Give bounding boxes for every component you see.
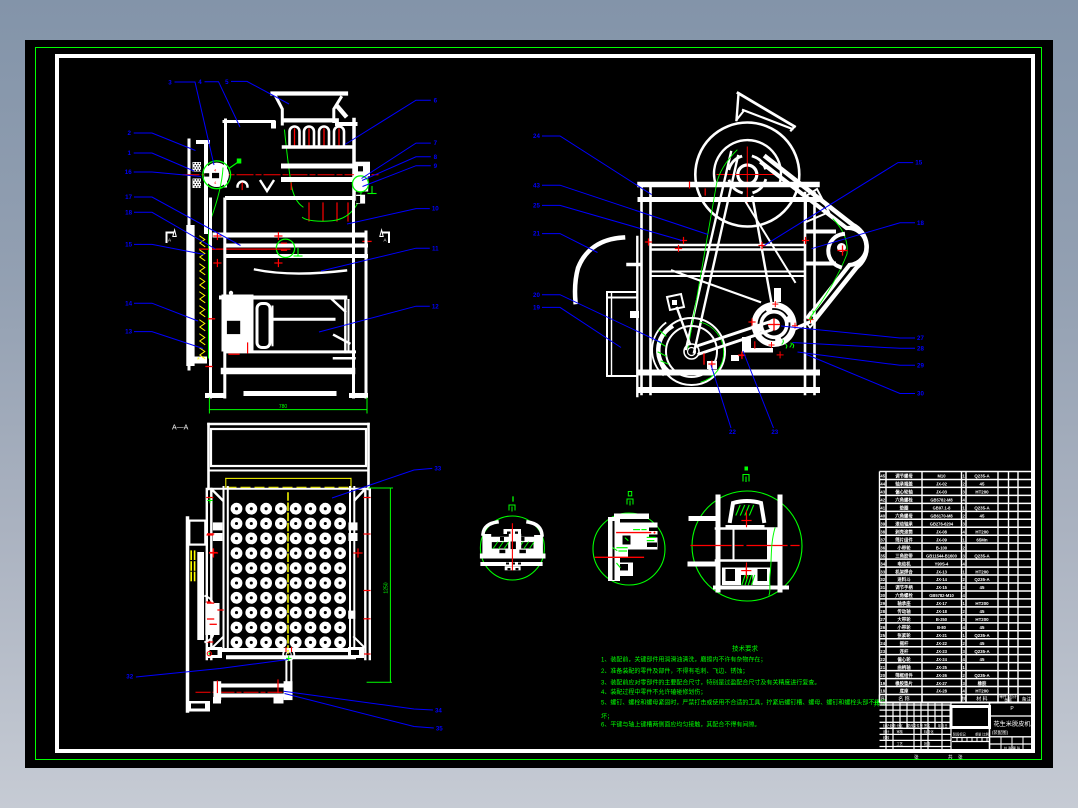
- svg-text:(装配图): (装配图): [992, 729, 1009, 736]
- svg-text:共 张 第 张: 共 张 第 张: [1004, 746, 1021, 751]
- svg-text:37: 37: [880, 537, 885, 542]
- svg-text:5: 5: [225, 79, 229, 86]
- svg-text:45: 45: [980, 641, 985, 646]
- svg-text:45: 45: [980, 585, 985, 590]
- svg-text:张: 张: [914, 754, 919, 761]
- svg-text:20: 20: [533, 292, 540, 299]
- svg-text:25: 25: [880, 633, 885, 638]
- svg-text:JX-28: JX-28: [936, 689, 948, 694]
- svg-text:18: 18: [917, 220, 924, 227]
- svg-text:33: 33: [880, 569, 885, 574]
- svg-text:HT200: HT200: [975, 601, 989, 606]
- svg-text:A—A: A—A: [172, 425, 189, 432]
- svg-text:滚动轴承: 滚动轴承: [895, 520, 913, 527]
- svg-text:A: A: [384, 238, 387, 243]
- svg-text:30: 30: [880, 593, 885, 598]
- svg-text:18: 18: [125, 209, 132, 216]
- svg-text:15: 15: [125, 242, 132, 249]
- svg-text:签名: 签名: [924, 723, 930, 728]
- svg-text:标准化: 标准化: [924, 729, 934, 734]
- svg-text:JX-17: JX-17: [936, 601, 948, 606]
- svg-text:JX-15: JX-15: [936, 585, 948, 590]
- svg-text:进料斗: 进料斗: [897, 576, 911, 583]
- svg-text:轴承端盖: 轴承端盖: [895, 481, 913, 488]
- svg-text:4: 4: [198, 79, 202, 86]
- svg-text:JX-18: JX-18: [936, 609, 948, 614]
- svg-text:HT200: HT200: [975, 689, 989, 694]
- svg-text:2: 2: [127, 130, 131, 137]
- svg-text:26: 26: [880, 625, 885, 630]
- svg-text:JX-27: JX-27: [936, 681, 948, 686]
- svg-text:8: 8: [434, 154, 438, 161]
- svg-text:HT200: HT200: [975, 617, 989, 622]
- svg-text:张: 张: [958, 754, 963, 761]
- svg-text:JX-08: JX-08: [936, 529, 948, 534]
- svg-text:小带轮: 小带轮: [897, 544, 911, 551]
- svg-text:14: 14: [125, 300, 132, 307]
- svg-text:GB5782-M8: GB5782-M8: [930, 498, 953, 503]
- svg-text:GB6170-M8: GB6170-M8: [930, 514, 953, 519]
- svg-text:44: 44: [880, 482, 885, 487]
- svg-text:坏；: 坏；: [601, 713, 613, 721]
- svg-text:45: 45: [980, 657, 985, 662]
- svg-text:重量 比例: 重量 比例: [975, 732, 989, 737]
- svg-text:35: 35: [880, 553, 885, 558]
- svg-text:9: 9: [434, 163, 438, 170]
- svg-text:JX-25: JX-25: [936, 665, 948, 670]
- svg-text:JX-14: JX-14: [936, 577, 948, 582]
- svg-text:23: 23: [880, 649, 885, 654]
- svg-text:17: 17: [125, 194, 132, 201]
- svg-text:三角胶带: 三角胶带: [895, 552, 913, 559]
- svg-text:28: 28: [880, 609, 885, 614]
- svg-text:1、装配前，关键部件用润滑油清洗，磨擦内不许有杂物存在；: 1、装配前，关键部件用润滑油清洗，磨擦内不许有杂物存在；: [601, 656, 766, 664]
- svg-text:曲柄轴: 曲柄轴: [897, 664, 911, 671]
- svg-text:21: 21: [880, 665, 885, 670]
- svg-text:JX-21: JX-21: [936, 633, 948, 638]
- svg-text:调节手柄: 调节手柄: [895, 584, 913, 591]
- svg-text:底座: 底座: [899, 688, 909, 695]
- svg-text:分区: 分区: [897, 723, 904, 728]
- svg-text:六角螺栓: 六角螺栓: [895, 497, 913, 504]
- svg-text:序: 序: [881, 695, 885, 702]
- svg-text:六角螺栓: 六角螺栓: [895, 592, 913, 599]
- svg-text:6: 6: [434, 97, 438, 104]
- svg-text:5、螺钉、螺栓和螺母紧固时，严禁打击或使用不合适的工具，拧紧: 5、螺钉、螺栓和螺母紧固时，严禁打击或使用不合适的工具，拧紧后螺钉槽、螺母、螺钉…: [601, 699, 886, 707]
- svg-text:校核: 校核: [883, 735, 890, 740]
- svg-text:Q235-A: Q235-A: [974, 673, 990, 678]
- svg-text:19: 19: [880, 681, 885, 686]
- svg-text:B-100: B-100: [936, 545, 948, 550]
- svg-text:JX-24: JX-24: [936, 657, 948, 662]
- svg-text:13: 13: [125, 329, 132, 336]
- svg-text:JX-22: JX-22: [936, 641, 948, 646]
- svg-text:Q235-A: Q235-A: [974, 649, 990, 654]
- svg-text:45: 45: [980, 482, 985, 487]
- svg-text:Y90S-4: Y90S-4: [935, 561, 949, 566]
- svg-text:16: 16: [125, 169, 132, 176]
- svg-text:橡胶: 橡胶: [978, 680, 987, 687]
- svg-text:45: 45: [980, 514, 985, 519]
- svg-text:六角螺母: 六角螺母: [895, 513, 913, 520]
- svg-text:45: 45: [980, 625, 985, 630]
- svg-text:3: 3: [168, 80, 172, 87]
- svg-text:28: 28: [917, 345, 924, 352]
- svg-text:36: 36: [880, 545, 885, 550]
- svg-text:垫圈: 垫圈: [900, 505, 909, 512]
- svg-text:审核: 审核: [897, 729, 904, 734]
- svg-text:JX-13: JX-13: [936, 569, 948, 574]
- svg-text:名 称: 名 称: [898, 695, 909, 702]
- svg-text:摇杆: 摇杆: [900, 640, 909, 647]
- svg-text:剥壳滚筒: 剥壳滚筒: [895, 528, 913, 535]
- svg-text:3、装配前应对零部件的主要配合尺寸，特别是过盈配合尺寸及有关: 3、装配前应对零部件的主要配合尺寸，特别是过盈配合尺寸及有关精度进行复查。: [601, 679, 820, 687]
- svg-text:橡胶垫片: 橡胶垫片: [895, 680, 913, 687]
- svg-text:技术要求: 技术要求: [732, 644, 759, 653]
- svg-text:重量: 重量: [1004, 698, 1012, 703]
- svg-text:调节螺母: 调节螺母: [895, 473, 913, 480]
- svg-text:41: 41: [880, 506, 885, 511]
- svg-text:工艺: 工艺: [897, 741, 903, 746]
- svg-text:780: 780: [279, 404, 288, 410]
- svg-text:阶段标记: 阶段标记: [953, 732, 967, 737]
- svg-text:筛框组件: 筛框组件: [895, 672, 913, 679]
- svg-text:GB97.1-8: GB97.1-8: [933, 506, 951, 511]
- svg-text:32: 32: [126, 674, 133, 681]
- svg-text:1250: 1250: [384, 582, 390, 593]
- svg-text:27: 27: [880, 617, 885, 622]
- svg-text:Q235-A: Q235-A: [974, 474, 990, 479]
- svg-text:24: 24: [533, 133, 540, 140]
- svg-text:Q235-A: Q235-A: [974, 633, 990, 638]
- svg-text:A: A: [168, 238, 171, 243]
- svg-text:35: 35: [436, 726, 443, 733]
- svg-text:33: 33: [434, 465, 441, 472]
- svg-text:GB276-6204: GB276-6204: [930, 521, 954, 526]
- svg-text:Q235-A: Q235-A: [974, 553, 990, 558]
- svg-text:电动机: 电动机: [897, 560, 911, 567]
- svg-text:31: 31: [880, 585, 885, 590]
- svg-text:43: 43: [880, 490, 885, 495]
- svg-text:传动轴: 传动轴: [896, 608, 911, 615]
- svg-text:18: 18: [880, 689, 885, 694]
- svg-text:20: 20: [880, 673, 885, 678]
- svg-text:Q235-A: Q235-A: [974, 506, 990, 511]
- svg-text:JX-09: JX-09: [936, 537, 948, 542]
- svg-text:HT200: HT200: [975, 529, 989, 534]
- svg-text:34: 34: [435, 707, 442, 714]
- svg-text:11: 11: [432, 245, 439, 252]
- svg-text:6、平键与轴上键槽两侧面应均匀接触，其配合不得有间隙。: 6、平键与轴上键槽两侧面应均匀接触，其配合不得有间隙。: [601, 721, 760, 729]
- svg-text:32: 32: [880, 577, 885, 582]
- svg-text:42: 42: [880, 498, 885, 503]
- svg-text:M10: M10: [938, 474, 947, 479]
- svg-text:批准: 批准: [924, 741, 931, 746]
- svg-text:12: 12: [432, 303, 439, 310]
- svg-text:JX-26: JX-26: [936, 673, 948, 678]
- svg-text:更改文件号: 更改文件号: [907, 723, 923, 728]
- svg-text:GB5782-M10: GB5782-M10: [929, 593, 954, 598]
- svg-text:34: 34: [880, 561, 885, 566]
- svg-text:材 料: 材 料: [976, 695, 987, 702]
- svg-text:40: 40: [880, 514, 885, 519]
- svg-text:张紧轮: 张紧轮: [897, 632, 911, 639]
- svg-text:HT200: HT200: [975, 569, 989, 574]
- svg-text:偏心轮轴: 偏心轮轴: [895, 489, 913, 496]
- svg-text:21: 21: [533, 231, 540, 238]
- svg-text:B-80: B-80: [937, 625, 947, 630]
- svg-text:JX-03: JX-03: [936, 490, 948, 495]
- svg-text:大带轮: 大带轮: [897, 616, 911, 623]
- svg-text:10: 10: [432, 206, 439, 213]
- svg-text:7: 7: [434, 140, 438, 147]
- svg-text:39: 39: [880, 521, 885, 526]
- svg-text:筛片组件: 筛片组件: [895, 536, 913, 543]
- svg-text:29: 29: [880, 601, 885, 606]
- svg-text:19: 19: [533, 305, 540, 312]
- svg-text:27: 27: [917, 335, 924, 342]
- svg-text:25: 25: [533, 203, 540, 210]
- svg-text:22: 22: [880, 657, 885, 662]
- svg-text:共: 共: [874, 700, 880, 708]
- svg-text:45: 45: [980, 609, 985, 614]
- svg-text:43: 43: [533, 182, 540, 189]
- svg-text:65Mn: 65Mn: [976, 537, 988, 542]
- svg-text:B-250: B-250: [936, 617, 948, 622]
- svg-text:备注: 备注: [1022, 695, 1032, 702]
- svg-text:JX-23: JX-23: [936, 649, 948, 654]
- svg-text:Q235-A: Q235-A: [974, 577, 990, 582]
- svg-text:共: 共: [948, 754, 953, 761]
- svg-text:30: 30: [917, 391, 924, 398]
- svg-text:24: 24: [880, 641, 885, 646]
- svg-text:HT200: HT200: [975, 490, 989, 495]
- svg-text:29: 29: [917, 362, 924, 369]
- svg-text:38: 38: [880, 529, 885, 534]
- svg-text:连杆: 连杆: [900, 648, 909, 655]
- svg-text:4、装配过程中零件不允许磕碰修划伤；: 4、装配过程中零件不允许磕碰修划伤；: [601, 688, 706, 696]
- svg-text:JX-02: JX-02: [936, 482, 948, 487]
- svg-text:1: 1: [127, 150, 131, 157]
- svg-text:15: 15: [915, 160, 922, 167]
- svg-text:GB11544-B1600: GB11544-B1600: [926, 553, 957, 558]
- svg-text:23: 23: [771, 429, 778, 436]
- svg-text:轴承座: 轴承座: [897, 600, 911, 607]
- svg-text:2、准备装配的零件及部件，不得有毛刺、飞边、锈蚀；: 2、准备装配的零件及部件，不得有毛刺、飞边、锈蚀；: [601, 667, 748, 675]
- svg-text:年月日: 年月日: [938, 723, 948, 728]
- svg-text:22: 22: [729, 429, 736, 436]
- svg-text:*: *: [197, 357, 200, 364]
- svg-text:机架焊合: 机架焊合: [895, 568, 913, 575]
- svg-text:偏心轮: 偏心轮: [897, 656, 911, 663]
- svg-text:小带轮: 小带轮: [897, 624, 911, 631]
- svg-text:45: 45: [880, 474, 885, 479]
- svg-text:设计: 设计: [883, 729, 890, 734]
- svg-text:花生米脱皮机: 花生米脱皮机: [993, 720, 1031, 728]
